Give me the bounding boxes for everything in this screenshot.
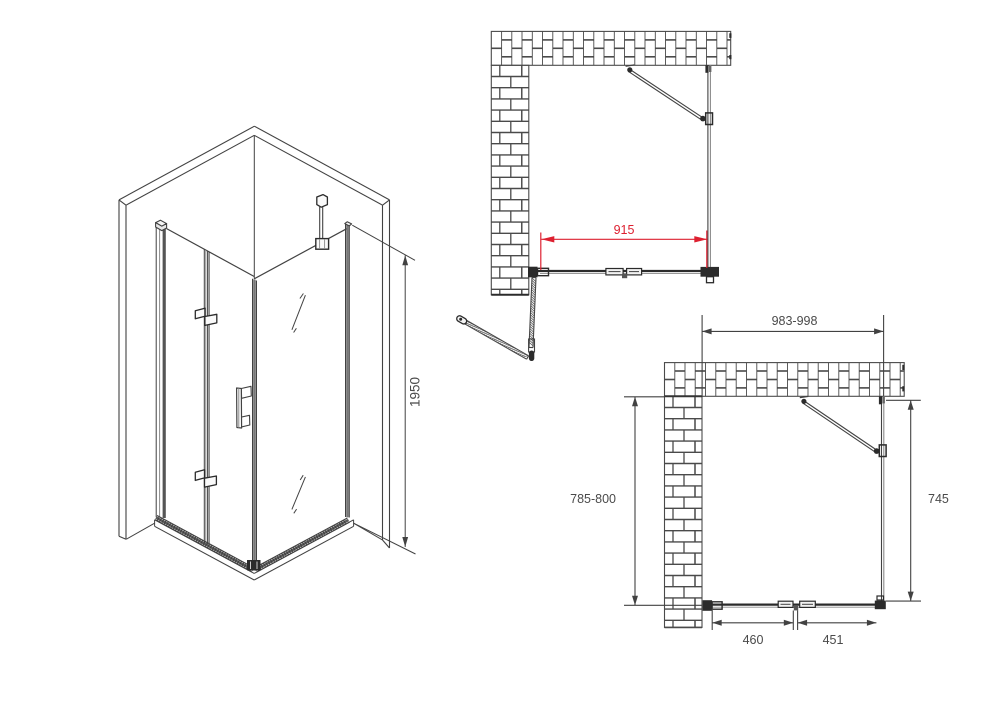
svg-text:460: 460 — [743, 633, 764, 647]
svg-text:915: 915 — [614, 223, 635, 237]
svg-text:1950: 1950 — [408, 377, 423, 407]
svg-text:745: 745 — [928, 492, 949, 506]
svg-text:451: 451 — [823, 633, 844, 647]
svg-text:785-800: 785-800 — [570, 492, 616, 506]
svg-text:983-998: 983-998 — [772, 314, 818, 328]
